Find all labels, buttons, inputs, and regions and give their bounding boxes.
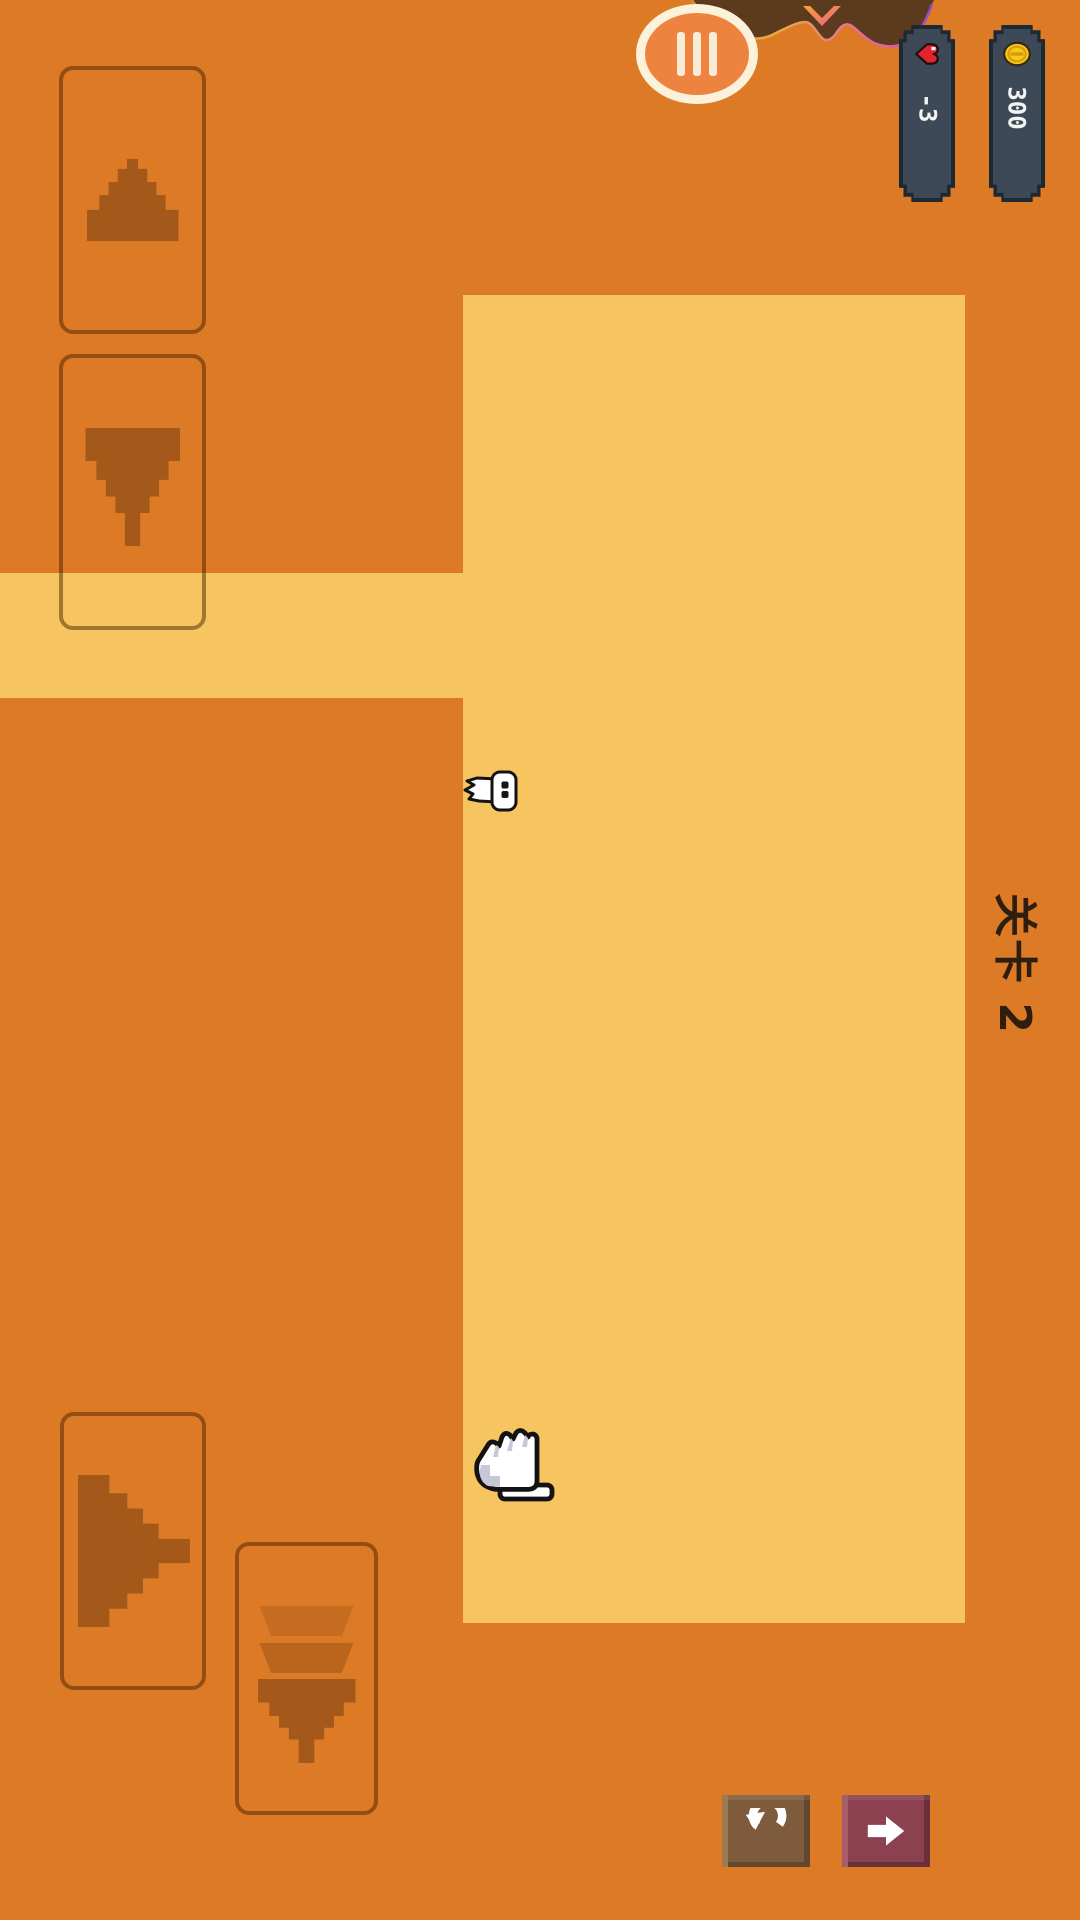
triangle-down-icon	[258, 1679, 356, 1763]
lives-badge: -3	[899, 25, 955, 202]
coin-icon	[1002, 41, 1032, 67]
triangle-up-icon	[87, 159, 179, 241]
restart-button[interactable]	[722, 1795, 810, 1867]
coins-value: 300	[1003, 86, 1031, 129]
triangle-down-icon	[85, 428, 180, 546]
pause-button[interactable]	[636, 4, 758, 104]
level-label: 关卡 2	[987, 893, 1051, 1035]
pause-bar-icon	[693, 32, 701, 76]
chevron-ghost-icon	[258, 1606, 356, 1636]
heart-icon	[913, 41, 941, 67]
drop-down-button[interactable]	[235, 1542, 378, 1815]
move-up-button[interactable]	[59, 66, 206, 334]
coins-value-wrap: 300	[989, 71, 1045, 145]
arrow-right-icon	[863, 1808, 909, 1854]
level-label-wrap: 关卡 2	[988, 880, 1050, 1048]
pause-bar-icon	[677, 32, 685, 76]
next-button[interactable]	[842, 1795, 930, 1867]
chevron-down-icon	[803, 6, 841, 26]
undo-arrow-icon	[743, 1808, 789, 1854]
move-right-button[interactable]	[60, 1412, 206, 1690]
move-down-button[interactable]	[59, 354, 206, 630]
lives-value: -3	[913, 94, 941, 123]
triangle-right-icon	[78, 1475, 190, 1627]
pause-bar-icon	[709, 32, 717, 76]
coins-badge: 300	[989, 25, 1045, 202]
lives-value-wrap: -3	[899, 71, 955, 145]
chevron-ghost-icon	[258, 1643, 356, 1673]
game-screen: -3 300 关卡 2	[0, 0, 1080, 1920]
game-board[interactable]	[463, 295, 965, 1623]
